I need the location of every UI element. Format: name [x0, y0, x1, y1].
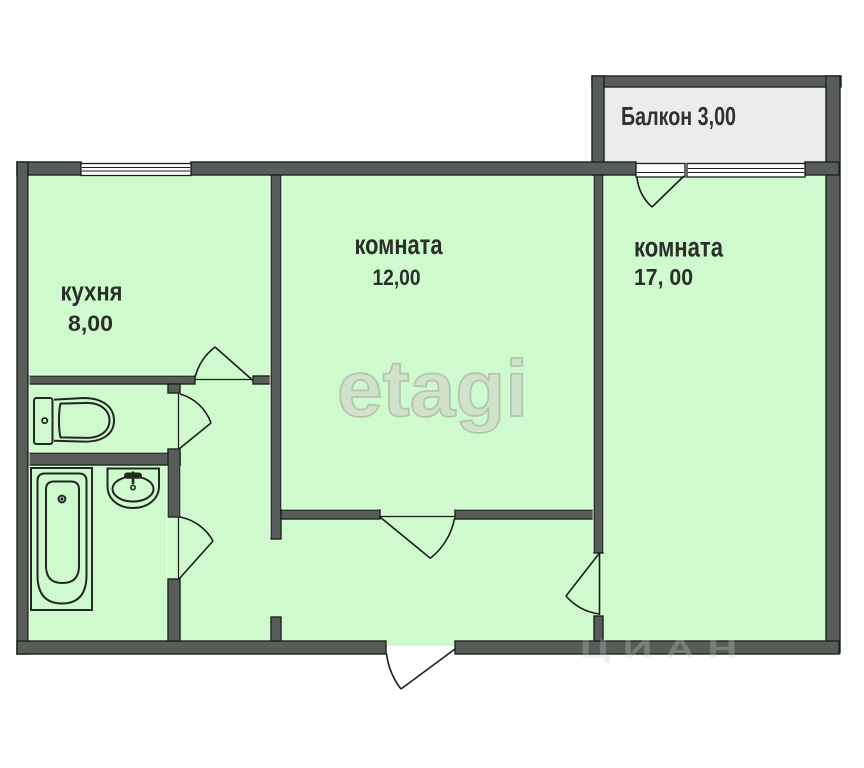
svg-text:комната: комната: [355, 229, 443, 260]
svg-text:комната: комната: [634, 232, 723, 263]
svg-text:ЦИАН: ЦИАН: [580, 634, 750, 664]
svg-text:17, 00: 17, 00: [634, 264, 693, 290]
svg-text:кухня: кухня: [61, 277, 123, 307]
svg-text:8,00: 8,00: [68, 311, 113, 336]
svg-text:12,00: 12,00: [373, 265, 421, 290]
svg-text:Балкон 3,00: Балкон 3,00: [621, 101, 736, 131]
svg-text:etagi: etagi: [337, 344, 528, 433]
